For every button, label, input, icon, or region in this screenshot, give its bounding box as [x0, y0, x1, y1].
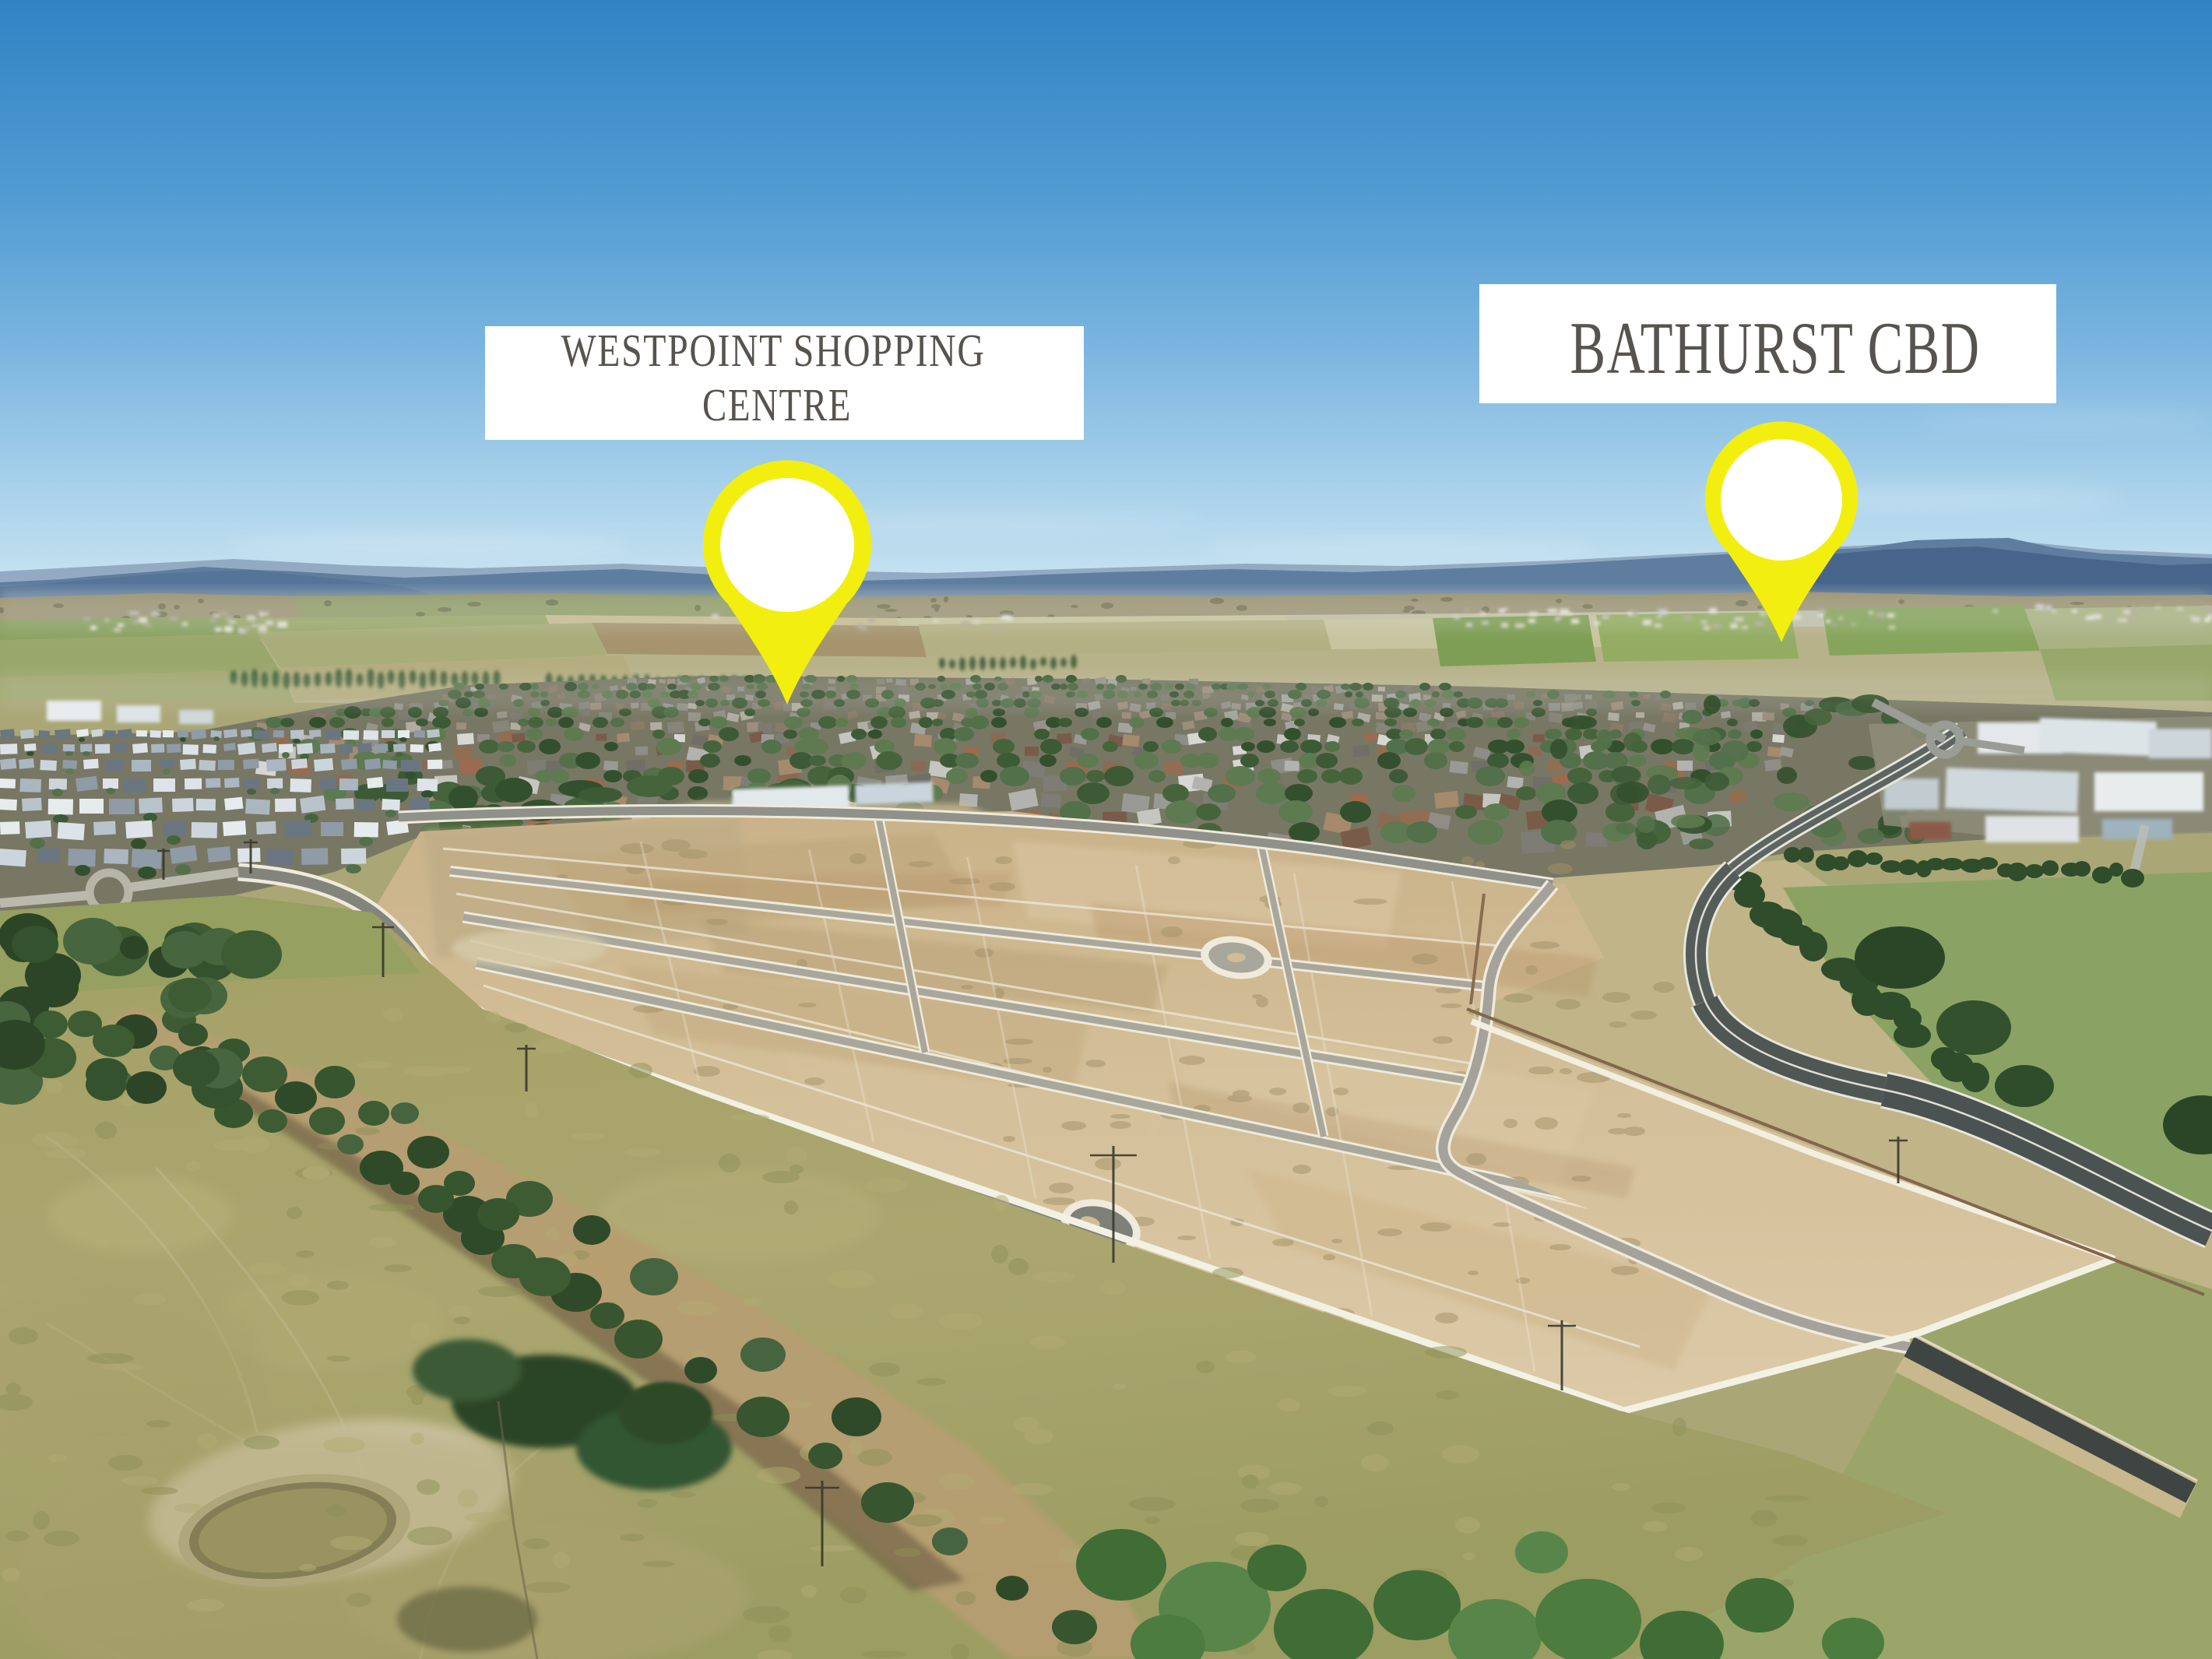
svg-text:BATHURST CBD: BATHURST CBD — [1570, 307, 1981, 389]
svg-text:WESTPOINT SHOPPING: WESTPOINT SHOPPING — [561, 325, 986, 376]
svg-text:CENTRE: CENTRE — [702, 379, 852, 431]
